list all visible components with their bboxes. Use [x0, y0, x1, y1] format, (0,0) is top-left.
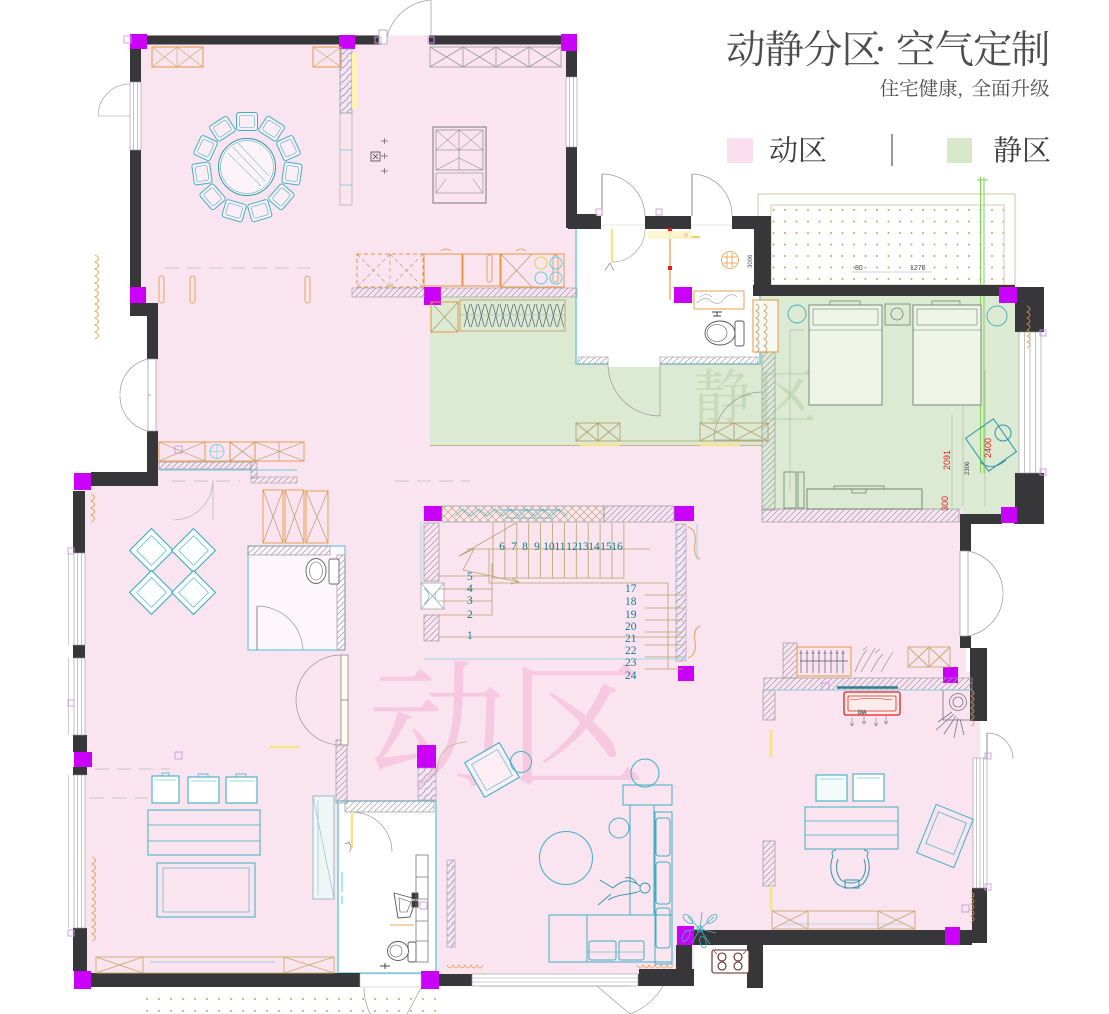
svg-text:19: 19: [625, 609, 637, 621]
svg-text:6: 6: [499, 541, 505, 553]
svg-text:12: 12: [566, 541, 578, 553]
svg-text:80: 80: [855, 265, 863, 272]
svg-text:18: 18: [625, 596, 637, 608]
svg-text:11: 11: [554, 541, 565, 553]
svg-text:9: 9: [534, 541, 540, 553]
svg-text:22: 22: [625, 645, 637, 657]
svg-text:21: 21: [625, 633, 637, 645]
svg-text:4: 4: [467, 583, 473, 595]
svg-text:2: 2: [467, 609, 473, 621]
svg-text:14: 14: [588, 541, 600, 553]
svg-text:24: 24: [625, 670, 637, 682]
svg-text:10: 10: [543, 541, 555, 553]
svg-text:13: 13: [577, 541, 589, 553]
svg-text:DIA: DIA: [858, 710, 867, 716]
svg-text:8: 8: [522, 541, 528, 553]
svg-text:3006: 3006: [748, 254, 754, 268]
svg-text:1: 1: [467, 630, 473, 642]
svg-text:2306: 2306: [965, 461, 971, 475]
svg-text:3: 3: [467, 595, 473, 607]
svg-text:20: 20: [625, 621, 637, 633]
svg-text:5: 5: [467, 571, 473, 583]
svg-text:23: 23: [625, 657, 637, 669]
svg-text:2400: 2400: [983, 438, 993, 458]
svg-text:2091: 2091: [942, 450, 952, 470]
svg-text:16: 16: [611, 541, 623, 553]
svg-text:1270: 1270: [910, 265, 926, 272]
svg-text:17: 17: [625, 583, 637, 595]
svg-text:7: 7: [511, 541, 517, 553]
svg-text:15: 15: [600, 541, 612, 553]
svg-text:300: 300: [940, 496, 950, 511]
